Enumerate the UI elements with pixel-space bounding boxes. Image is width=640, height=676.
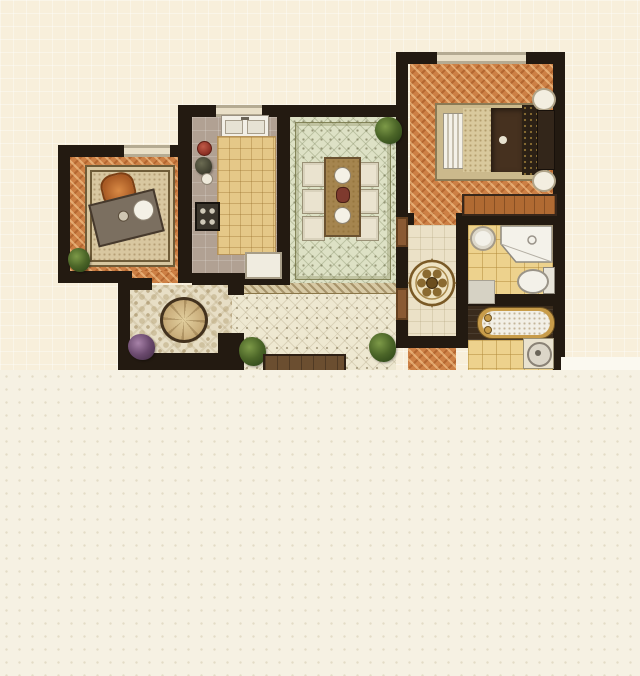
toilet-bowl [517,269,549,294]
room-lower-bedroom-floor [408,348,456,370]
floor-plan-canvas [0,0,640,676]
wall [288,105,398,117]
wall [178,105,216,117]
washer [523,338,554,369]
wall [178,105,192,283]
floor-plan [0,0,640,370]
bedroom-door-threshold [412,213,458,225]
wardrobe [537,110,555,170]
place-setting [334,207,351,224]
wall [228,283,244,295]
kitchen-cup [201,173,213,185]
compass-medallion [407,258,457,308]
tv-cabinet [263,354,346,370]
blanket-button [499,136,507,144]
dresser [462,194,557,216]
bathtub-tap [484,314,492,322]
kitchen-plant [195,157,212,175]
sink-basin-left [225,120,243,134]
bathtub-tap [484,326,492,334]
kitchen-red-bowl [197,141,212,156]
nightstand [532,170,556,192]
bedroom-window [437,52,526,64]
dining-chair [302,189,325,214]
bathtub [477,307,555,339]
nightstand [532,88,556,111]
entry-round-rug [160,297,208,343]
living-plant [369,333,396,362]
wall [398,52,437,64]
sink-basin-right [247,120,265,134]
stove [195,202,220,231]
study-plant [68,248,90,272]
washer-dot [535,350,541,356]
corner-shower [500,225,553,263]
background-lower [0,370,640,676]
bed [435,103,549,181]
bed-blanket [491,108,522,172]
living-plant [239,337,266,366]
bath-sink [470,226,496,251]
white-patch [561,357,640,370]
bath-mat [468,280,495,304]
entry-plant [128,334,155,360]
bed-foot-bench [443,113,465,169]
dining-chair [302,216,325,241]
bathtub-basin [482,311,550,335]
wall [118,278,152,290]
wall [456,213,468,345]
dining-plant [375,117,402,144]
bed-mattress [463,108,493,172]
kitchen-counter [217,136,276,255]
sink-faucet [241,117,249,120]
fridge [245,252,282,279]
dining-chair [302,162,325,187]
centerpiece [336,187,350,203]
kitchen-sink [221,115,269,137]
hallway-door-upper [396,217,408,247]
dining-table [324,157,361,237]
wall [396,336,468,348]
place-setting [334,167,351,184]
study-window [124,145,170,157]
